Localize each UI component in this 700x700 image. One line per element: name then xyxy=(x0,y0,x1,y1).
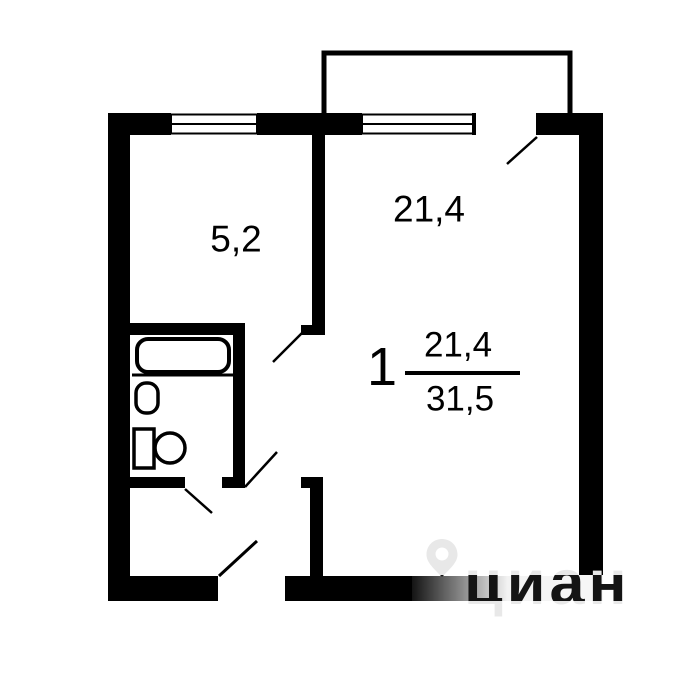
toilet-tank-icon xyxy=(134,429,154,468)
balcony-door-swing xyxy=(507,137,537,164)
toilet-bowl-icon xyxy=(155,433,185,463)
bathroom-fixtures xyxy=(132,339,233,468)
floor-plan: 5,2 21,4 1 21,4 31,5 циан циан xyxy=(0,0,700,700)
rooms-count-label: 1 xyxy=(367,340,397,394)
wall-kitchen-living-divider xyxy=(312,135,325,335)
wall-kitchen-living-divider-foot xyxy=(301,325,325,335)
bathroom-door-swing xyxy=(185,489,212,513)
wall-bathroom-right xyxy=(233,323,245,488)
kitchen-door-swing xyxy=(273,333,302,362)
kitchen-window xyxy=(171,115,257,134)
wall-bathroom-bottom xyxy=(130,477,185,488)
wall-bathroom-door-stub xyxy=(222,477,245,488)
wall-left xyxy=(108,113,130,601)
wall-top-middle-segment xyxy=(257,113,362,135)
wall-bottom-right-segment xyxy=(285,576,603,601)
balcony-outline xyxy=(324,53,570,113)
fraction-bar xyxy=(405,371,520,375)
wall-hallway-living-divider xyxy=(310,477,323,601)
total-area-label: 31,5 xyxy=(426,382,494,417)
sink-icon xyxy=(136,383,158,413)
kitchen-area-label: 5,2 xyxy=(210,221,261,258)
living-room-window xyxy=(362,115,473,134)
bathtub-icon xyxy=(137,339,229,372)
living-room-door-swing xyxy=(245,452,277,487)
entrance-door-swing xyxy=(219,541,257,576)
wall-bottom-left-segment xyxy=(108,576,218,601)
wall-right xyxy=(579,113,603,601)
living-room-area-label: 21,4 xyxy=(393,191,465,228)
floor-plan-canvas xyxy=(0,0,700,700)
living-area-label: 21,4 xyxy=(424,328,492,363)
wall-kitchen-bathroom-divider xyxy=(130,323,245,335)
